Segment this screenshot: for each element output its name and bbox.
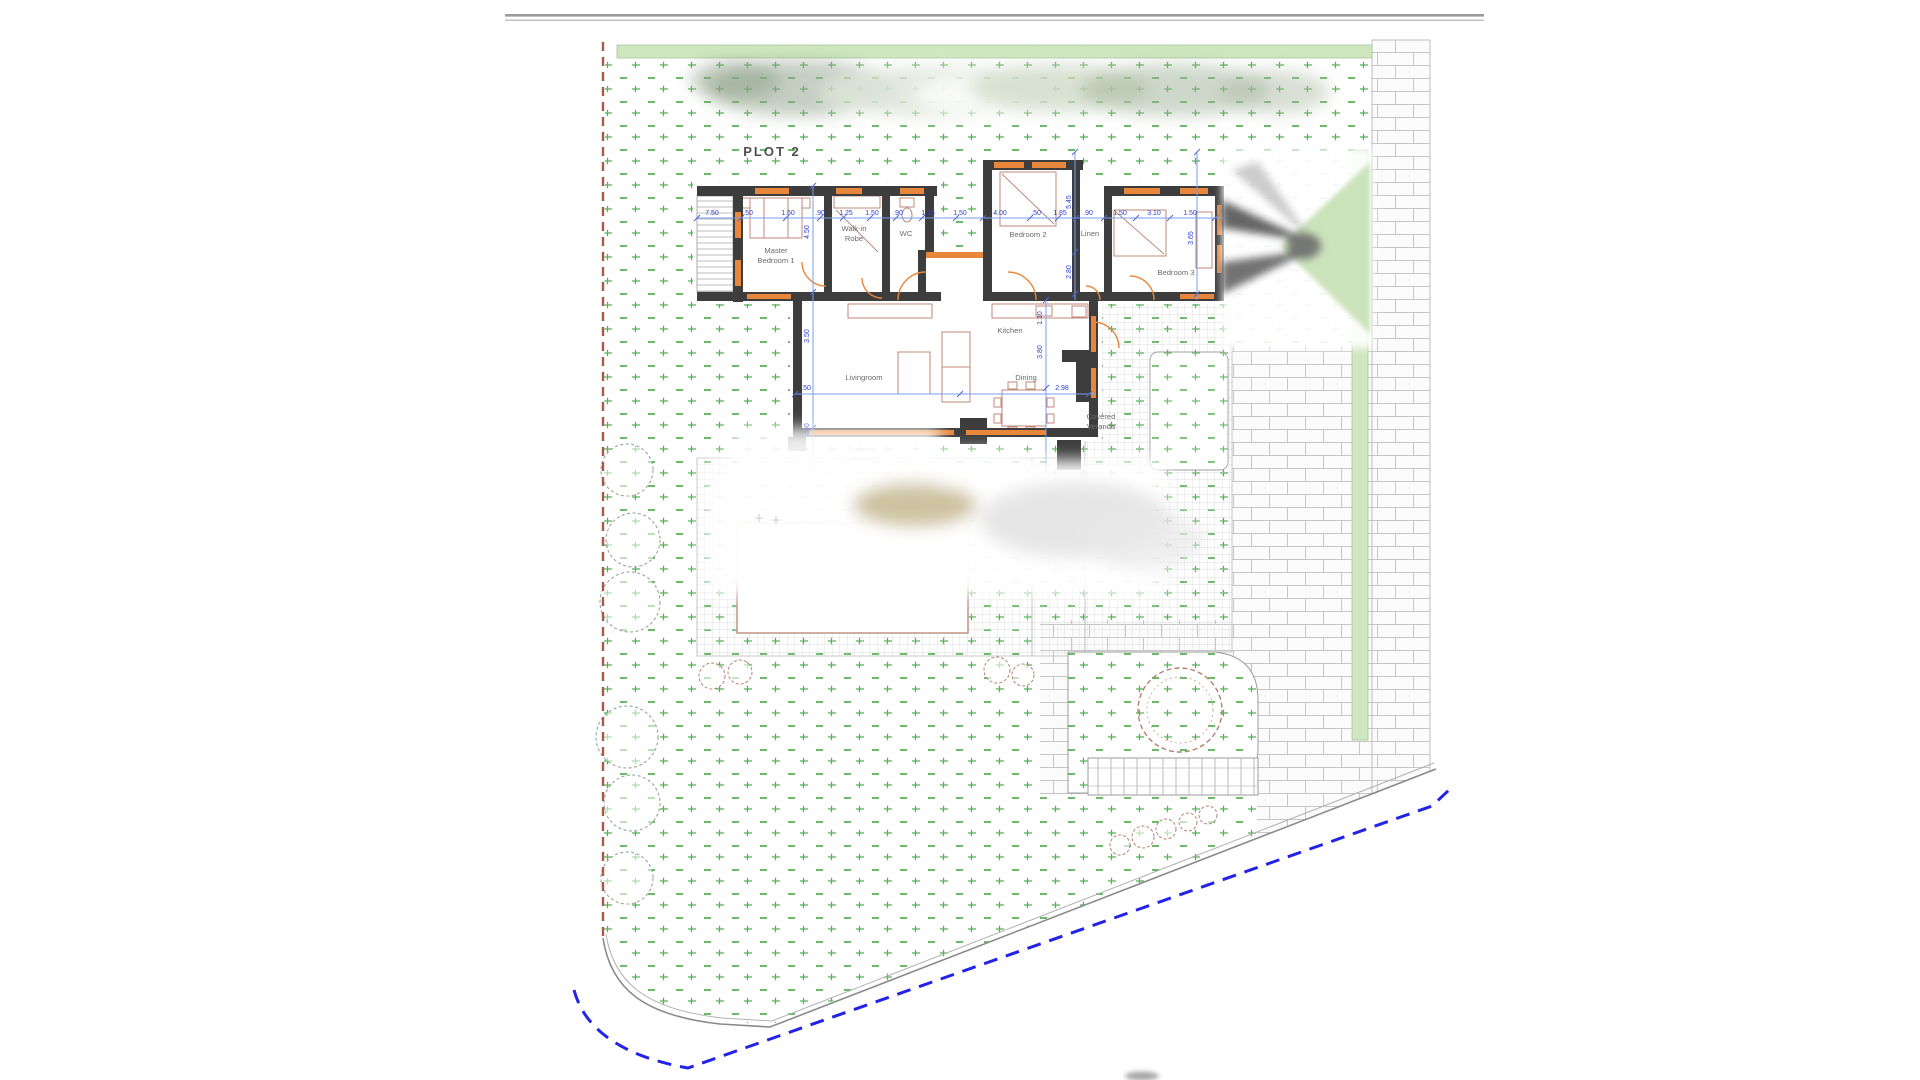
room-label-linen: Linen [1081, 229, 1100, 238]
room-label-master-2: Bedroom 1 [757, 256, 794, 265]
bush-icon [1110, 835, 1130, 855]
bush-icon [728, 660, 752, 684]
room-label-kitchen: Kitchen [997, 326, 1022, 335]
grate-band [1088, 758, 1258, 795]
dim-value: 2.80 [1066, 265, 1073, 279]
shrub-icon [606, 513, 660, 567]
dim-value: .90 [893, 210, 903, 217]
room-label-living: Livingroom [845, 373, 882, 382]
plot-title: PLOT 2 [743, 144, 801, 159]
room-label-dining: Dining [1015, 373, 1037, 382]
dim-value: 1.50 [1183, 210, 1197, 217]
dim-value: 1.50 [781, 210, 795, 217]
dim-value: 1.25 [839, 210, 853, 217]
dim-value: 3.80 [1037, 345, 1044, 359]
shrub-icon [600, 572, 660, 632]
dim-value: 4.00 [993, 210, 1007, 217]
dim-value: 2.98 [1055, 385, 1069, 392]
smudge-east-fan [1222, 148, 1372, 348]
dim-value: 1.10 [1037, 311, 1044, 325]
stone-strip-right [1372, 40, 1430, 795]
room-label-robe-1: Walk-in [841, 224, 866, 233]
room-label-veranda-east-2: Veranda [1087, 422, 1116, 431]
top-rule [505, 14, 1484, 21]
dim-value: 1.50 [1113, 210, 1127, 217]
dim-value: 3.65 [1188, 231, 1195, 245]
dim-value: 1.25 [921, 210, 935, 217]
dim-value: 4.50 [804, 225, 811, 239]
dim-value: 1.85 [1053, 210, 1067, 217]
greenbelt-top [617, 45, 1372, 58]
bush-icon [1156, 819, 1176, 839]
room-label-bedroom3: Bedroom 3 [1157, 268, 1194, 277]
dim-value: .50 [743, 210, 753, 217]
smudge-bottom-mark [1125, 1072, 1159, 1080]
dim-value: .90 [815, 210, 825, 217]
dim-value: 5.45 [1066, 195, 1073, 209]
dim-value: .90 [1083, 210, 1093, 217]
bush-icon [984, 657, 1010, 683]
dim-value: .50 [801, 385, 811, 392]
dim-value: 1.50 [865, 210, 879, 217]
dim-value: 1.50 [953, 210, 967, 217]
shrub-icon [601, 852, 653, 904]
shrub-icon [601, 444, 653, 496]
bush-icon [1012, 664, 1034, 686]
shrub-icon [604, 775, 660, 831]
dim-value: .50 [1031, 210, 1041, 217]
bush-icon [1179, 813, 1197, 831]
stone-area-east [1232, 345, 1372, 620]
site-plan-drawing: 7.50 .50 1.50 .90 1.25 1.50 .90 1.25 1.5… [0, 0, 1920, 1080]
planter-bed [1150, 352, 1228, 470]
room-label-robe-2: Robe [845, 234, 863, 243]
dim-value: 3.50 [804, 329, 811, 343]
dim-value: 7.50 [705, 210, 719, 217]
shrub-icon [596, 706, 658, 768]
room-label-wc: WC [900, 229, 913, 238]
room-label-veranda-east-1: Covered [1087, 412, 1116, 421]
bush-icon [699, 663, 725, 689]
bush-icon [1199, 806, 1217, 824]
bush-icon [1132, 826, 1154, 848]
room-label-bedroom2: Bedroom 2 [1009, 230, 1046, 239]
room-label-master-1: Master [764, 246, 788, 255]
dim-value: 3.10 [1147, 210, 1161, 217]
